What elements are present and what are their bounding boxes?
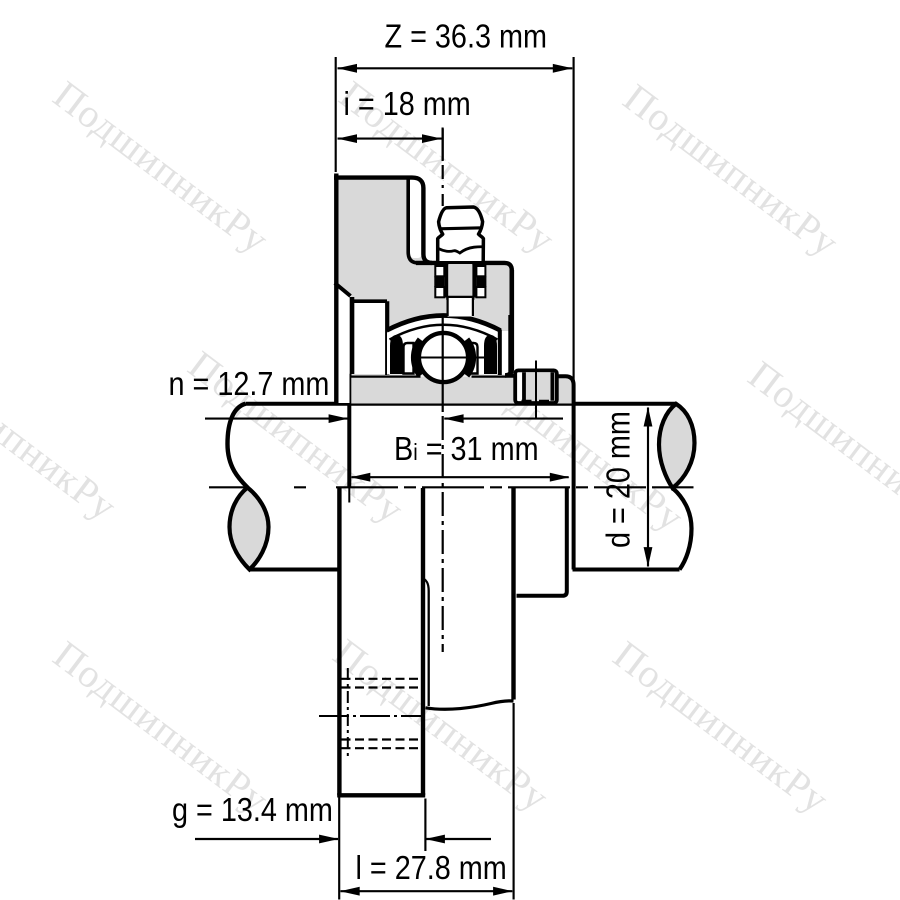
- svg-text:g = 13.4 mm: g = 13.4 mm: [172, 791, 333, 829]
- svg-text:d = 20 mm: d = 20 mm: [599, 411, 637, 548]
- svg-text:i = 18 mm: i = 18 mm: [344, 85, 471, 123]
- svg-text:l = 27.8 mm: l = 27.8 mm: [356, 849, 507, 887]
- svg-text:n = 12.7 mm: n = 12.7 mm: [169, 365, 330, 403]
- svg-text:Z = 36.3 mm: Z = 36.3 mm: [385, 17, 547, 55]
